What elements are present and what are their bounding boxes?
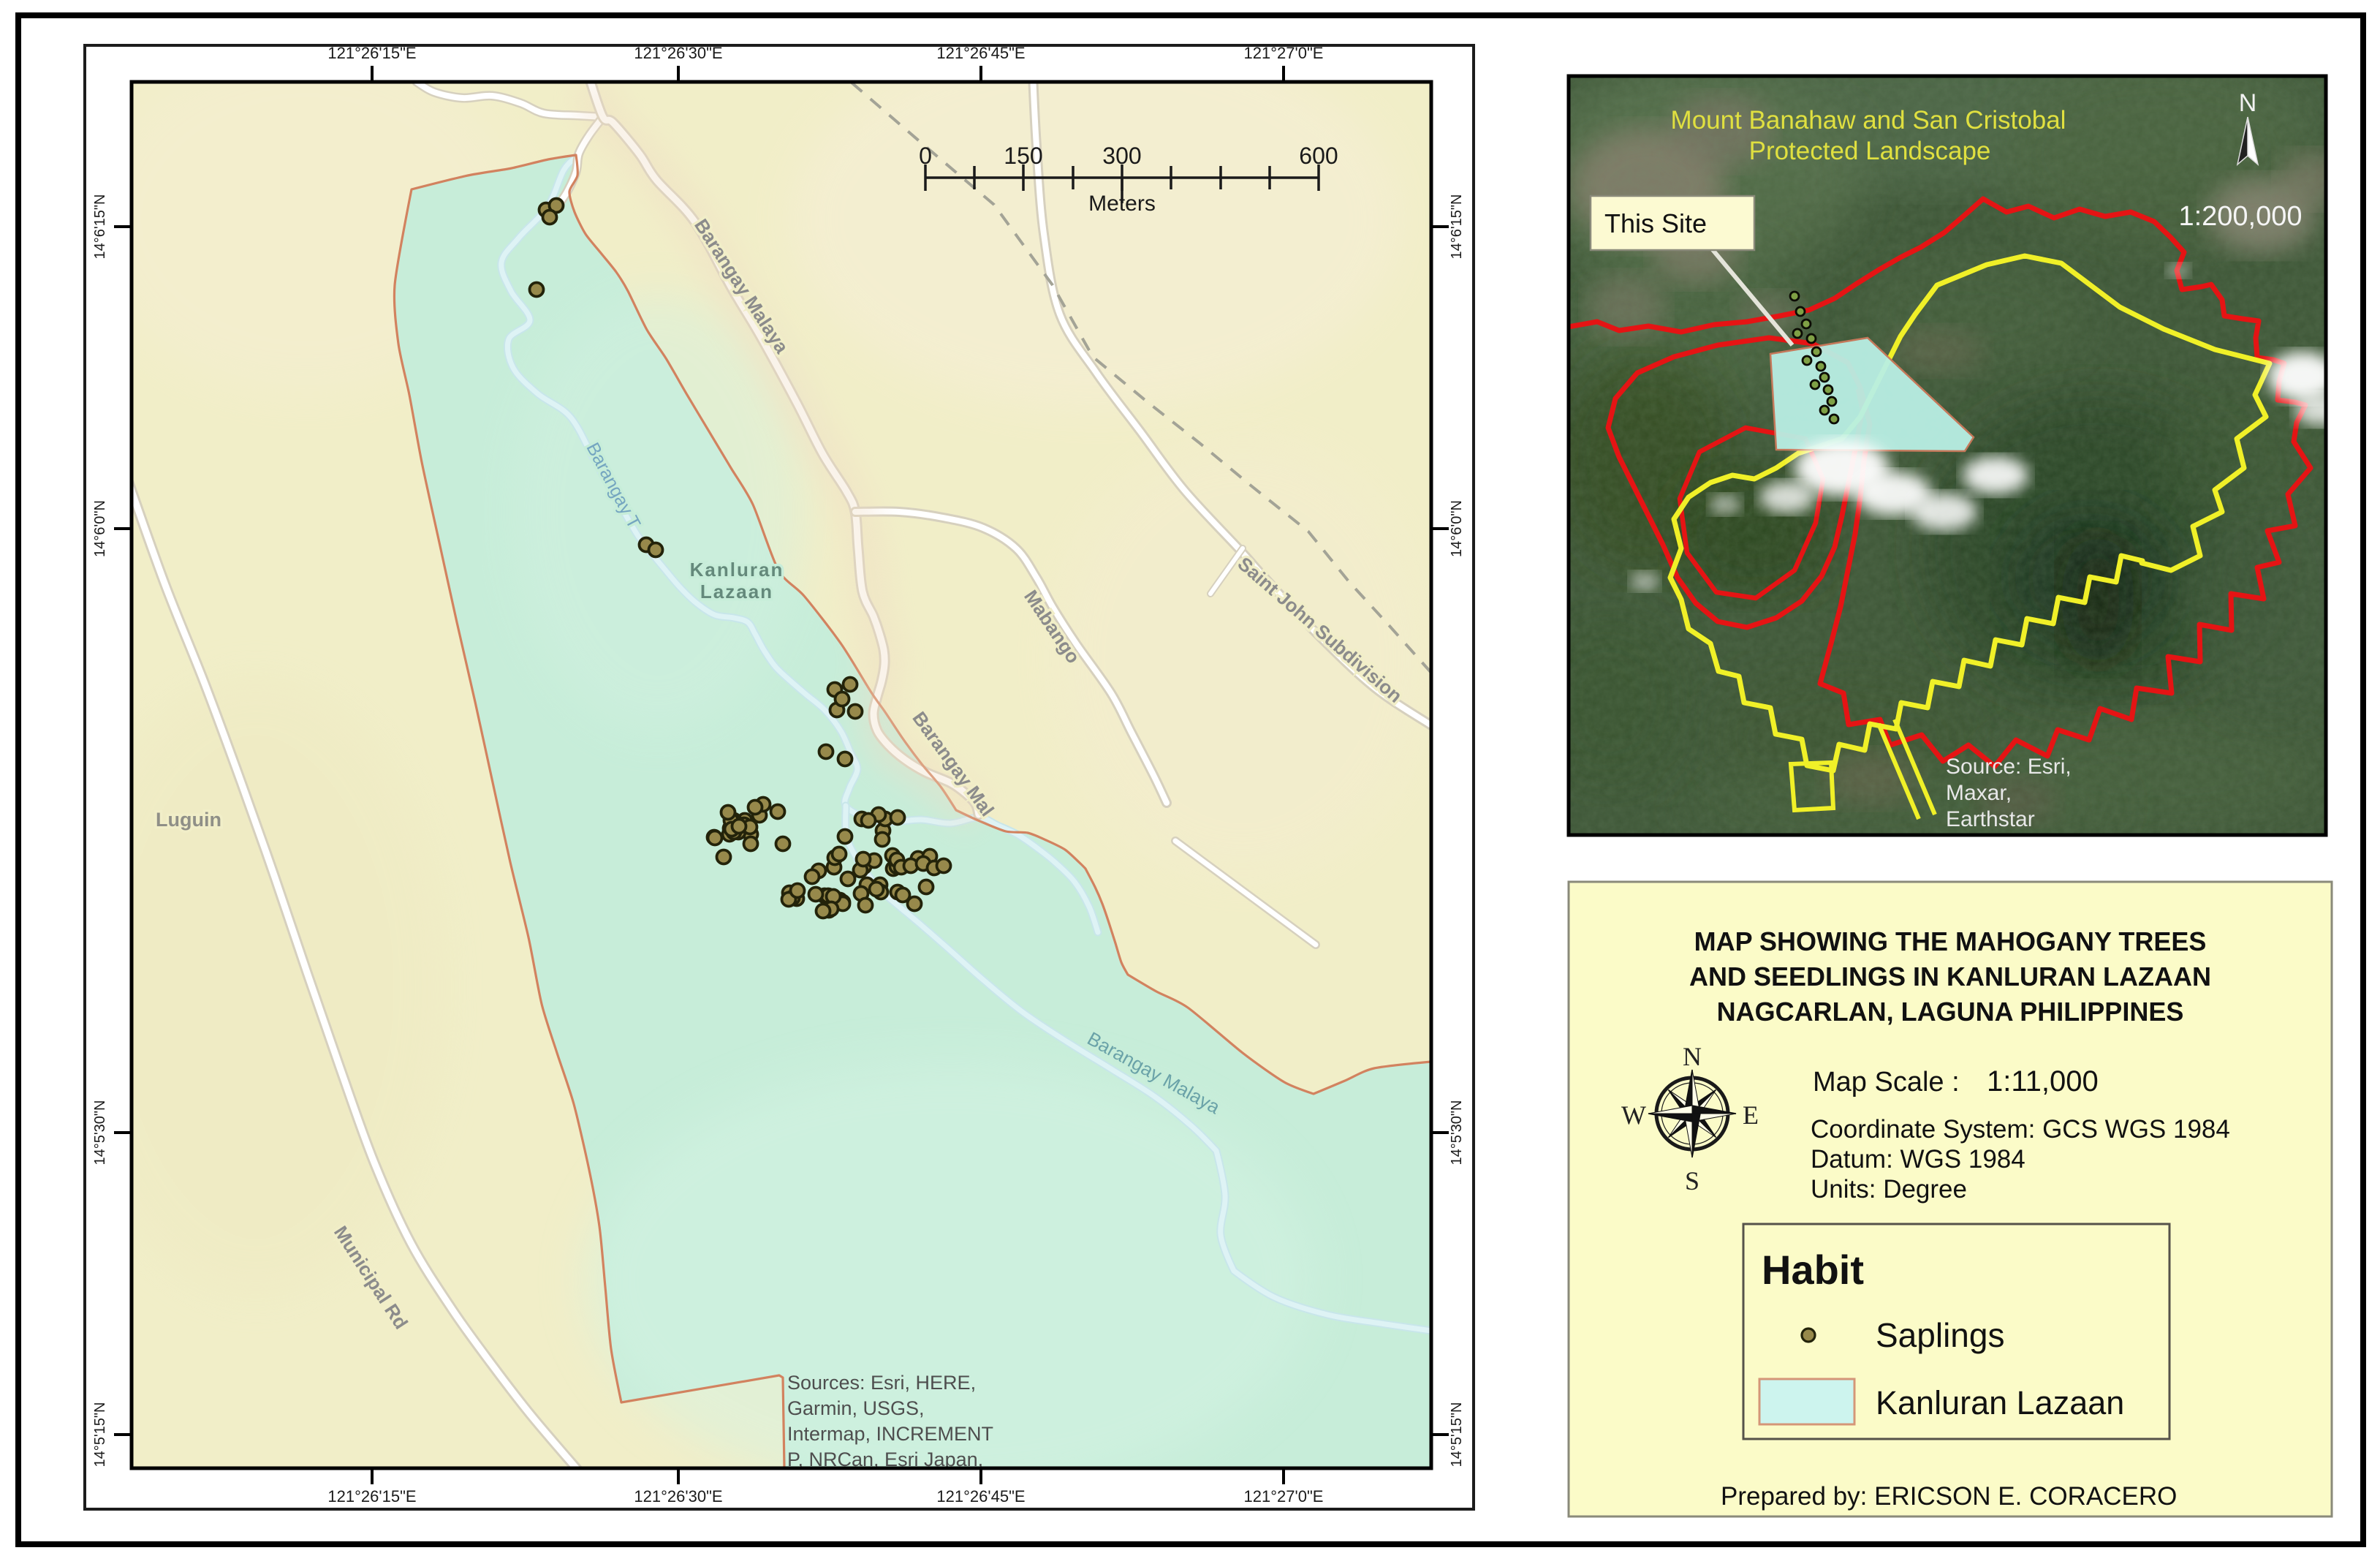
svg-text:300: 300 [1102,143,1141,169]
svg-text:14°5'30"N: 14°5'30"N [1449,1100,1465,1166]
svg-text:600: 600 [1299,143,1338,169]
svg-text:Lazaan: Lazaan [700,581,773,602]
svg-text:121°26'15"E: 121°26'15"E [327,44,416,62]
svg-text:Maxar,: Maxar, [1946,781,2012,805]
svg-text:This Site: This Site [1604,208,1707,238]
svg-text:E: E [1743,1100,1759,1130]
svg-text:121°26'45"E: 121°26'45"E [936,1487,1025,1506]
svg-text:Kanluran Lazaan: Kanluran Lazaan [1876,1384,2124,1421]
svg-text:1:11,000: 1:11,000 [1987,1065,2099,1098]
svg-text:1:200,000: 1:200,000 [2178,201,2302,232]
svg-text:121°27'0"E: 121°27'0"E [1244,1487,1324,1506]
svg-text:121°27'0"E: 121°27'0"E [1244,44,1324,62]
svg-text:S: S [1685,1166,1699,1195]
svg-text:14°5'30"N: 14°5'30"N [92,1100,108,1166]
svg-text:Protected Landscape: Protected Landscape [1749,137,1991,165]
svg-text:14°5'15"N: 14°5'15"N [92,1402,108,1467]
svg-text:N: N [2239,89,2257,117]
svg-text:NAGCARLAN, LAGUNA PHILIPPINES: NAGCARLAN, LAGUNA PHILIPPINES [1717,997,2184,1027]
svg-text:Luguin: Luguin [156,809,221,831]
svg-text:Earthstar: Earthstar [1946,807,2035,831]
svg-text:Source: Esri,: Source: Esri, [1946,755,2072,779]
svg-text:Map Scale :: Map Scale : [1813,1067,1960,1098]
svg-text:121°26'45"E: 121°26'45"E [936,44,1025,62]
svg-text:14°6'0"N: 14°6'0"N [92,500,108,557]
svg-text:Intermap, INCREMENT: Intermap, INCREMENT [787,1423,993,1445]
svg-text:Sources: Esri, HERE,: Sources: Esri, HERE, [787,1372,976,1394]
svg-text:Meters: Meters [1088,192,1156,216]
svg-text:0: 0 [919,143,932,169]
svg-text:14°5'15"N: 14°5'15"N [1449,1402,1465,1467]
svg-text:121°26'30"E: 121°26'30"E [634,1487,722,1506]
svg-text:Prepared by: ERICSON E. CORAC: Prepared by: ERICSON E. CORACERO [1721,1482,2177,1511]
svg-text:121°26'15"E: 121°26'15"E [327,1487,416,1506]
svg-text:121°26'30"E: 121°26'30"E [634,44,722,62]
svg-text:14°6'0"N: 14°6'0"N [1449,500,1465,557]
svg-text:AND SEEDLINGS IN KANLURAN LAZA: AND SEEDLINGS IN KANLURAN LAZAAN [1689,962,2211,991]
svg-text:Datum: WGS 1984: Datum: WGS 1984 [1811,1145,2025,1174]
svg-text:Units: Degree: Units: Degree [1811,1175,1967,1204]
svg-text:14°6'15"N: 14°6'15"N [92,194,108,260]
svg-text:Garmin, USGS,: Garmin, USGS, [787,1397,925,1419]
svg-text:14°6'15"N: 14°6'15"N [1449,194,1465,260]
svg-text:Habit: Habit [1762,1247,1864,1293]
svg-text:Mount Banahaw and San Cristoba: Mount Banahaw and San Cristobal [1671,106,2066,135]
svg-text:Kanluran: Kanluran [690,559,784,581]
svg-text:W: W [1621,1100,1646,1130]
svg-text:150: 150 [1004,143,1042,169]
svg-text:MAP SHOWING THE MAHOGANY TREES: MAP SHOWING THE MAHOGANY TREES [1694,926,2207,956]
svg-text:Coordinate System: GCS WGS 198: Coordinate System: GCS WGS 1984 [1811,1115,2230,1144]
svg-text:N: N [1683,1042,1702,1071]
svg-text:Saplings: Saplings [1876,1316,2004,1354]
